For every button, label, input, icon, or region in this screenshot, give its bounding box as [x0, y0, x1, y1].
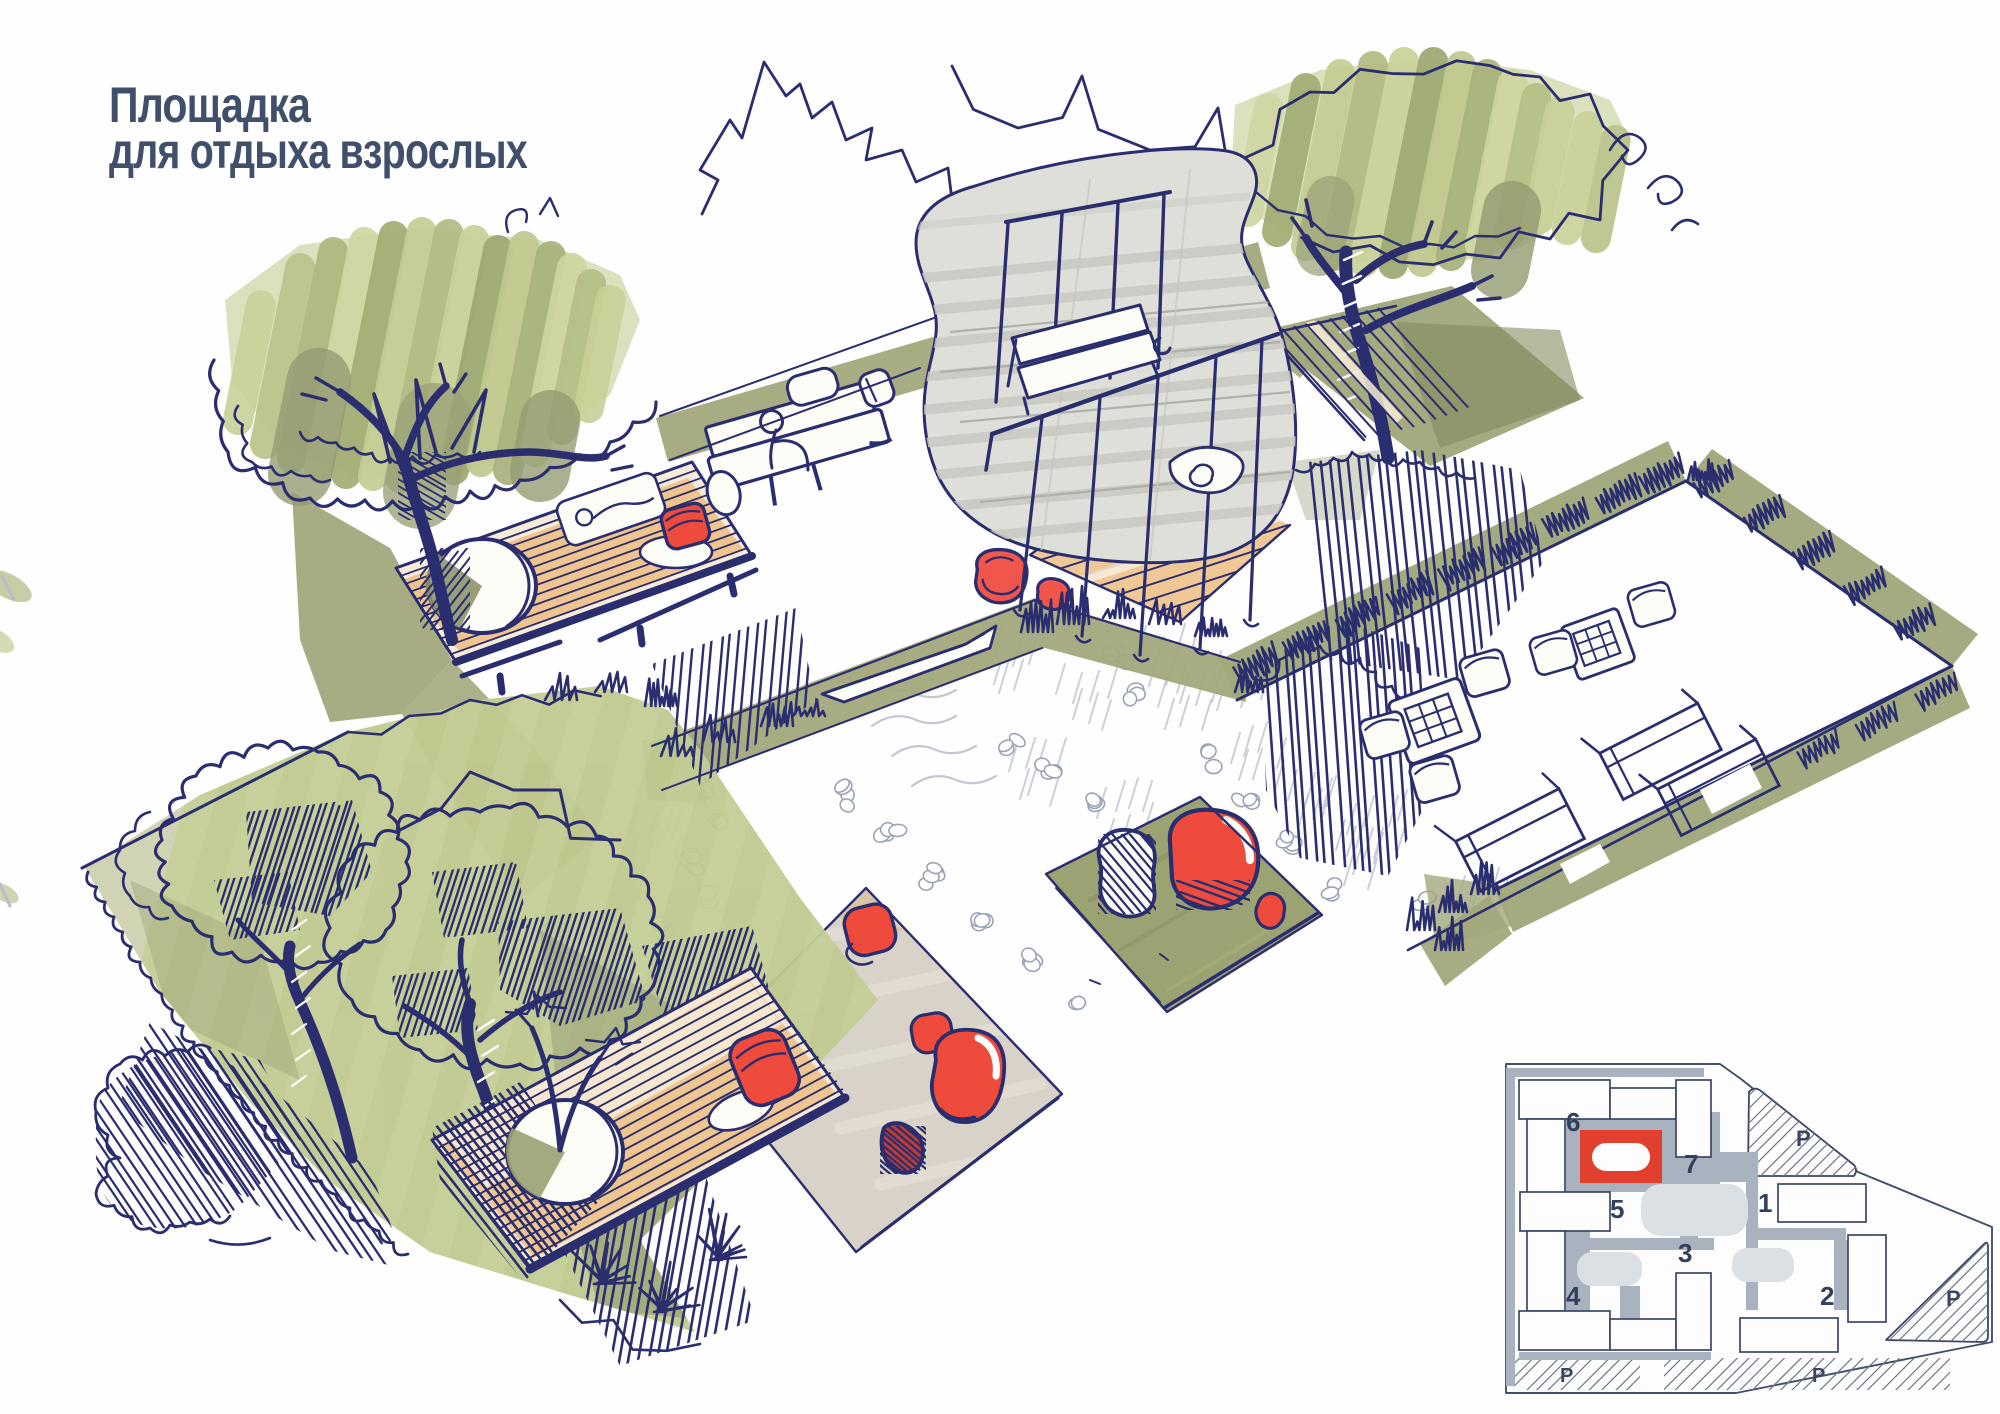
svg-text:6: 6 [1566, 1107, 1580, 1137]
svg-text:для отдыха взрослых: для отдыха взрослых [109, 123, 528, 179]
svg-text:7: 7 [1684, 1149, 1698, 1179]
svg-text:P: P [1796, 1126, 1811, 1151]
svg-text:5: 5 [1610, 1194, 1624, 1224]
svg-text:4: 4 [1566, 1281, 1581, 1311]
svg-text:P: P [1560, 1365, 1573, 1387]
svg-text:1: 1 [1758, 1188, 1772, 1218]
svg-text:P: P [1946, 1286, 1961, 1311]
svg-text:P: P [1812, 1365, 1825, 1387]
svg-text:3: 3 [1678, 1238, 1692, 1268]
svg-text:2: 2 [1820, 1281, 1834, 1311]
